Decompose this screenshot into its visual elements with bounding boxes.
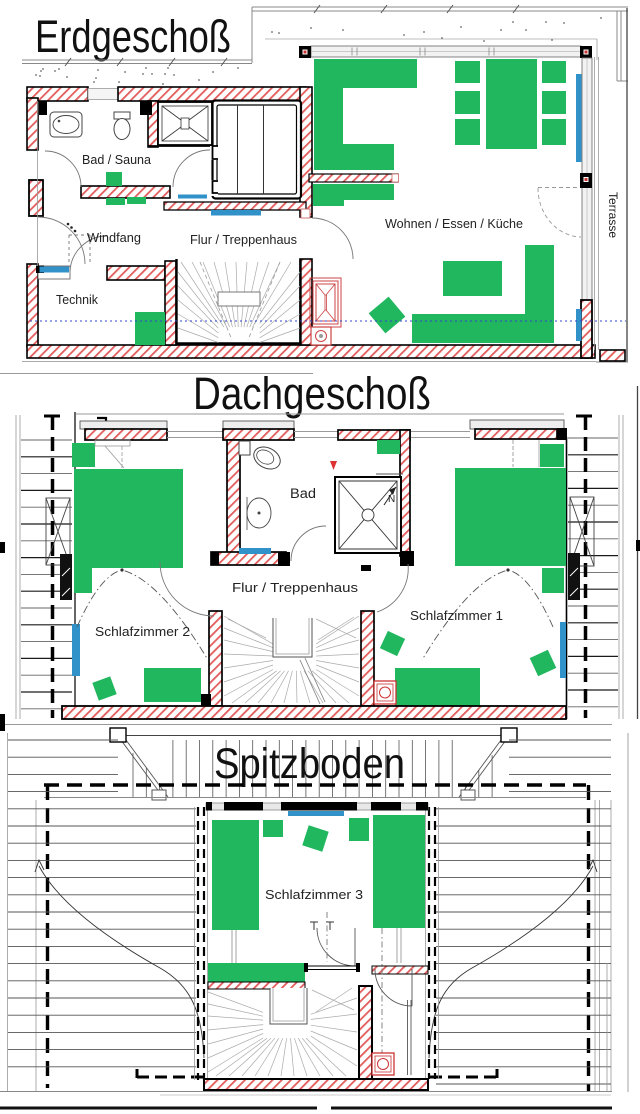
svg-text:Bad: Bad: [290, 486, 316, 501]
svg-text:Terrasse: Terrasse: [606, 192, 620, 238]
svg-text:Flur / Treppenhaus: Flur / Treppenhaus: [232, 580, 359, 595]
svg-text:Schlafzimmer 3: Schlafzimmer 3: [265, 887, 363, 902]
svg-text:Schlafzimmer 2: Schlafzimmer 2: [95, 624, 190, 639]
svg-text:Bad / Sauna: Bad / Sauna: [82, 153, 151, 167]
svg-text:Dachgeschoß: Dachgeschoß: [193, 368, 431, 419]
svg-text:Erdgeschoß: Erdgeschoß: [35, 11, 231, 62]
svg-text:N: N: [388, 494, 395, 505]
svg-text:Schlafzimmer 1: Schlafzimmer 1: [410, 608, 503, 623]
svg-text:Windfang: Windfang: [87, 231, 141, 245]
svg-text:Spitzboden: Spitzboden: [214, 740, 405, 788]
svg-text:Wohnen / Essen / Küche: Wohnen / Essen / Küche: [385, 217, 523, 231]
svg-text:Technik: Technik: [56, 293, 99, 307]
svg-text:Flur / Treppenhaus: Flur / Treppenhaus: [190, 233, 297, 247]
